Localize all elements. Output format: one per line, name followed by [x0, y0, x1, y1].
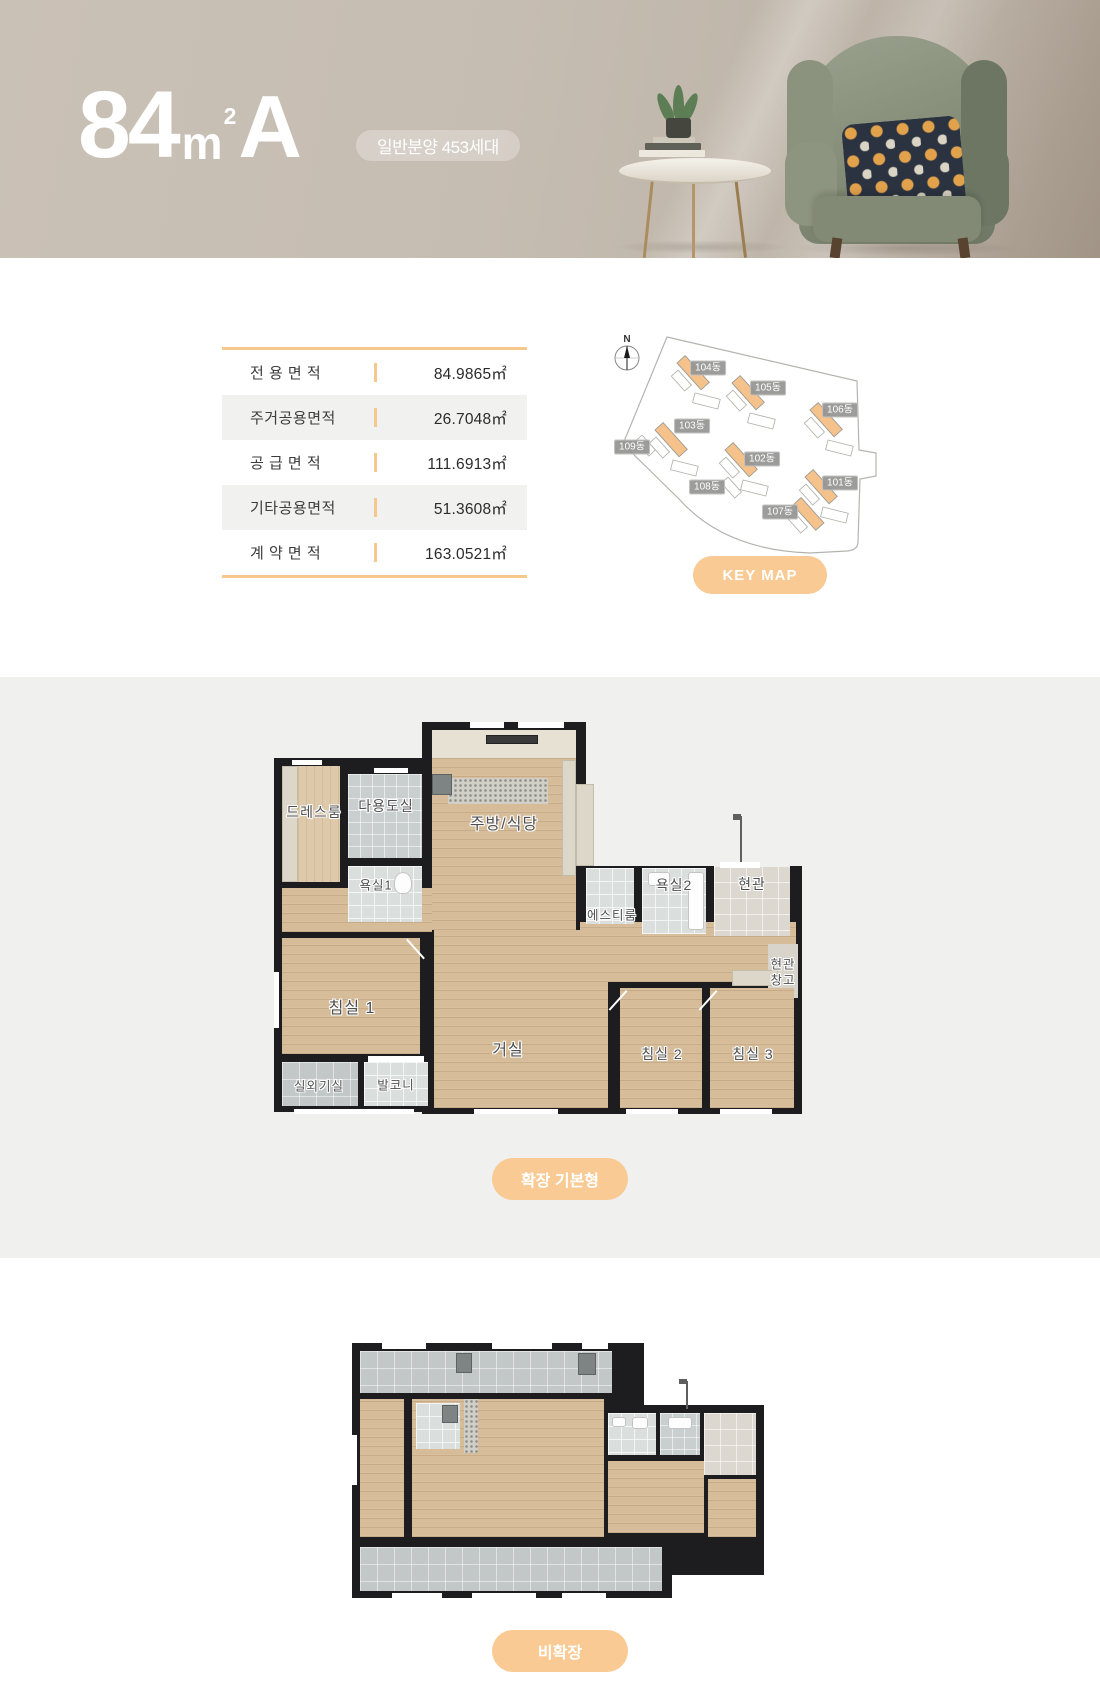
room-label-bedroom2: 침실 2 — [641, 1044, 682, 1064]
window-gap — [352, 1435, 357, 1485]
window-gap — [518, 722, 564, 728]
floorplan-basic — [352, 1285, 764, 1605]
room-label-kitchen: 주방/식당 — [470, 810, 538, 834]
area-label: 기타공용면적 — [250, 497, 336, 518]
room-label-st: 에스티룸 — [587, 905, 637, 924]
window-gap — [492, 1343, 552, 1349]
interior-floor — [360, 1399, 604, 1537]
window-gap — [374, 768, 408, 773]
window-gap — [582, 1343, 608, 1349]
pantry-closet — [562, 760, 576, 876]
cooktop-fixture — [486, 735, 538, 744]
plant-pot — [666, 118, 691, 138]
area-row: 전 용 면 적 84.9865㎡ — [222, 350, 527, 395]
building-label-chip: 101동 — [822, 476, 858, 491]
bedroom-floor — [708, 1479, 756, 1537]
room-label-living: 거실 — [492, 1036, 523, 1060]
area-unit-exponent: 2 — [224, 105, 237, 128]
area-separator — [374, 498, 377, 517]
window-gap — [474, 1109, 558, 1114]
window-gap — [292, 760, 322, 765]
closet — [282, 766, 298, 882]
balcony-top — [360, 1351, 612, 1393]
entrance — [704, 1413, 756, 1475]
area-row: 주거공용면적 26.7048㎡ — [222, 395, 527, 440]
room-utility — [348, 774, 422, 858]
area-separator — [374, 543, 377, 562]
sink-fixture — [612, 1417, 626, 1427]
wall — [404, 1399, 412, 1537]
room-label-bedroom3: 침실 3 — [732, 1044, 773, 1064]
room-living — [434, 930, 608, 1108]
room-label-outdoor-unit: 실외기실 — [294, 1076, 344, 1095]
antenna-flag — [733, 814, 741, 820]
room-label-dressroom: 드레스룸 — [286, 802, 342, 822]
room-label-entrance-storage: 창고 — [770, 970, 795, 989]
area-value: 163.0521㎡ — [425, 542, 507, 564]
room-label-utility: 다용도실 — [358, 796, 414, 816]
building-label-chip: 106동 — [822, 403, 858, 418]
balcony-bottom — [360, 1547, 662, 1591]
appliance-fixture — [432, 774, 452, 795]
closet — [576, 784, 594, 866]
room-label-bath2: 욕실2 — [656, 875, 693, 895]
unit-type-page: { "header": { "title_number": "84", "tit… — [0, 0, 1100, 1688]
area-label: 공 급 면 적 — [250, 452, 321, 473]
area-row: 공 급 면 적 111.6913㎡ — [222, 440, 527, 485]
room-label-entrance: 현관 — [738, 874, 766, 894]
window-gap — [294, 1109, 414, 1114]
antenna-flag — [679, 1379, 687, 1384]
area-row: 기타공용면적 51.3608㎡ — [222, 485, 527, 530]
building-label-chip: 104동 — [690, 361, 726, 376]
door-gap — [368, 1056, 424, 1062]
expanded-type-button[interactable]: 확장 기본형 — [492, 1158, 628, 1200]
area-value: 51.3608㎡ — [434, 497, 507, 519]
table-shadow — [611, 240, 791, 254]
book-illustration — [645, 143, 701, 150]
book-illustration — [639, 150, 705, 157]
area-value: 111.6913㎡ — [427, 452, 507, 474]
area-value: 26.7048㎡ — [434, 407, 507, 429]
area-value: 84.9865㎡ — [434, 362, 507, 384]
window-gap — [626, 1109, 678, 1114]
tub-fixture — [668, 1417, 692, 1429]
table-leg — [692, 178, 695, 258]
building-label-chip: 105동 — [750, 381, 786, 396]
appliance-fixture — [456, 1353, 472, 1373]
window-gap — [470, 722, 504, 728]
floorplan-expanded: 드레스룸 다용도실 욕실1 주방/식당 에스티룸 욕실2 현관 현관 창고 침실… — [274, 722, 804, 1118]
area-unit: m — [182, 125, 223, 162]
window-gap — [472, 1593, 536, 1598]
window-gap — [562, 1593, 606, 1598]
header-banner: 84m2A 일반분양 453세대 — [0, 0, 1100, 258]
building-label-chip: 109동 — [614, 440, 650, 455]
bedroom-floor — [608, 1461, 704, 1533]
type-letter: A — [238, 93, 300, 162]
keymap-figure: N — [575, 300, 915, 570]
window-gap — [274, 972, 279, 1028]
room-label-bedroom1: 침실 1 — [329, 994, 376, 1018]
area-separator — [374, 408, 377, 427]
toilet-fixture — [394, 872, 412, 894]
toilet-fixture — [632, 1417, 648, 1429]
room-label-balcony: 발코니 — [377, 1075, 415, 1094]
antenna-symbol — [740, 816, 742, 868]
header-photo — [561, 0, 1100, 258]
compass-north-label: N — [623, 334, 630, 345]
armchair-seat — [813, 196, 981, 242]
building-label-chip: 102동 — [744, 452, 780, 467]
side-table-illustration — [619, 158, 771, 184]
area-separator — [374, 363, 377, 382]
area-label: 계 약 면 적 — [250, 542, 321, 563]
door-gap — [720, 862, 760, 868]
building-label-chip: 103동 — [674, 419, 710, 434]
window-gap — [720, 1109, 772, 1114]
window-gap — [382, 1343, 426, 1349]
area-label: 전 용 면 적 — [250, 362, 321, 383]
antenna-symbol — [686, 1381, 688, 1409]
area-separator — [374, 453, 377, 472]
kitchen-strip — [464, 1399, 478, 1453]
area-number: 84 — [78, 88, 178, 162]
area-label: 주거공용면적 — [250, 407, 336, 428]
building-label-chip: 107동 — [762, 505, 798, 520]
room-label-bath1: 욕실1 — [360, 875, 393, 894]
keymap-drawing: N — [575, 300, 915, 570]
non-expanded-button[interactable]: 비확장 — [492, 1630, 628, 1672]
area-table: 전 용 면 적 84.9865㎡ 주거공용면적 26.7048㎡ 공 급 면 적… — [222, 347, 527, 578]
shower-fixture — [442, 1405, 458, 1423]
compass-icon: N — [615, 334, 639, 370]
window-gap — [392, 1593, 442, 1598]
page-title: 84m2A 일반분양 453세대 — [78, 88, 520, 162]
keymap-button[interactable]: KEY MAP — [693, 556, 827, 594]
building-label-chip: 108동 — [689, 480, 725, 495]
sale-badge: 일반분양 453세대 — [356, 130, 520, 161]
appliance-fixture — [578, 1353, 596, 1375]
area-row: 계 약 면 적 163.0521㎡ — [222, 530, 527, 575]
kitchen-island — [448, 778, 548, 804]
